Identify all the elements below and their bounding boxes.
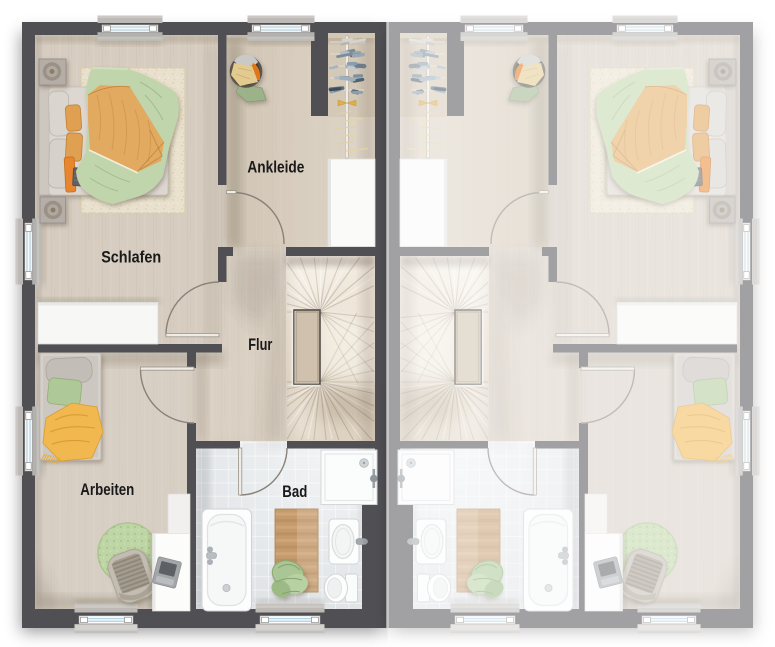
svg-text:Bad: Bad bbox=[282, 483, 307, 501]
svg-text:Ankleide: Ankleide bbox=[247, 159, 304, 177]
svg-text:Schlafen: Schlafen bbox=[101, 249, 161, 267]
svg-text:Flur: Flur bbox=[248, 336, 272, 354]
svg-text:Arbeiten: Arbeiten bbox=[80, 481, 134, 499]
